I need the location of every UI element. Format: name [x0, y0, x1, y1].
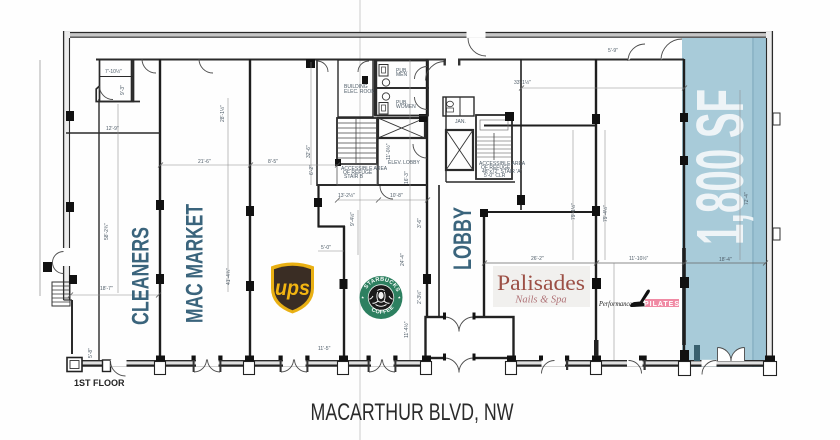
svg-text:72'-4": 72'-4"	[744, 192, 750, 205]
svg-text:32'-6": 32'-6"	[306, 145, 312, 158]
svg-text:11'-4½": 11'-4½"	[403, 321, 410, 338]
svg-text:33'-1½": 33'-1½"	[514, 79, 531, 86]
svg-text:ups: ups	[275, 277, 310, 300]
svg-text:21'-6": 21'-6"	[198, 159, 211, 165]
svg-text:CLEANERS: CLEANERS	[128, 227, 155, 325]
svg-text:10'-8": 10'-8"	[390, 193, 403, 199]
svg-text:16'-3": 16'-3"	[404, 171, 410, 184]
svg-text:Palisades: Palisades	[497, 270, 585, 295]
svg-text:LOBBY: LOBBY	[449, 207, 477, 270]
svg-text:26'-2": 26'-2"	[531, 256, 544, 262]
svg-text:79'-4½": 79'-4½"	[602, 205, 609, 222]
svg-text:41'-4¾": 41'-4¾"	[226, 268, 232, 285]
svg-text:11'-0½": 11'-0½"	[385, 143, 392, 160]
svg-text:3'-6": 3'-6"	[417, 218, 423, 228]
svg-text:58'-2¾": 58'-2¾"	[104, 223, 110, 240]
svg-text:9'-4½": 9'-4½"	[349, 212, 356, 226]
svg-text:8'-5": 8'-5"	[268, 159, 278, 165]
svg-text:18'-7": 18'-7"	[100, 286, 113, 292]
svg-text:5'-8": 5'-8"	[88, 348, 94, 358]
svg-text:JAN.: JAN.	[455, 119, 466, 125]
svg-text:MACARTHUR BLVD, NW: MACARTHUR BLVD, NW	[311, 399, 515, 426]
svg-text:ELEC. ROOM: ELEC. ROOM	[344, 89, 375, 95]
svg-text:7'-10½": 7'-10½"	[105, 68, 122, 75]
svg-text:1,800 SF: 1,800 SF	[683, 89, 758, 245]
svg-text:24'-4": 24'-4"	[400, 253, 406, 266]
svg-text:12'-9": 12'-9"	[106, 126, 119, 132]
svg-text:MEN: MEN	[396, 72, 408, 78]
svg-text:11'-10½": 11'-10½"	[629, 255, 649, 262]
svg-text:ELEV. LOBBY: ELEV. LOBBY	[388, 160, 420, 166]
svg-text:Performance: Performance	[598, 299, 632, 308]
svg-text:28'-1½": 28'-1½"	[219, 105, 226, 122]
svg-text:6'-2": 6'-2"	[309, 165, 315, 175]
svg-text:1ST FLOOR: 1ST FLOOR	[74, 378, 125, 388]
svg-text:11'-5": 11'-5"	[318, 346, 331, 352]
svg-text:13'-2½": 13'-2½"	[338, 192, 355, 199]
svg-text:79'-1½": 79'-1½"	[570, 203, 577, 220]
svg-text:2'-3½": 2'-3½"	[416, 290, 423, 304]
svg-text:MAC MARKET: MAC MARKET	[182, 204, 209, 323]
svg-text:STAIR B: STAIR B	[344, 174, 364, 180]
svg-text:9'-3": 9'-3"	[120, 85, 126, 95]
svg-text:Nails & Spa: Nails & Spa	[514, 295, 566, 306]
svg-text:WOMEN: WOMEN	[396, 104, 416, 110]
svg-text:PILATES: PILATES	[644, 301, 680, 308]
svg-text:5'-0" CLR: 5'-0" CLR	[484, 173, 506, 179]
svg-text:5'-9": 5'-9"	[608, 48, 618, 54]
svg-text:18'-4": 18'-4"	[719, 257, 732, 263]
svg-text:5'-0": 5'-0"	[321, 245, 331, 251]
